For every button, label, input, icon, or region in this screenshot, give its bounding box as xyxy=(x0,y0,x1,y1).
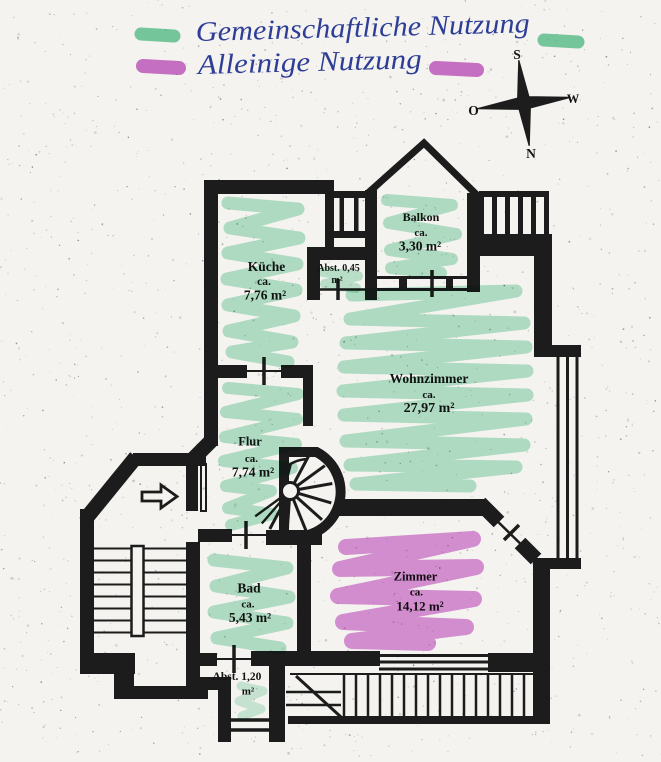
svg-text:O: O xyxy=(468,103,479,118)
svg-text:Abst. 1,20: Abst. 1,20 xyxy=(213,671,262,683)
svg-text:W: W xyxy=(567,92,580,106)
svg-text:S: S xyxy=(513,47,521,62)
svg-text:N: N xyxy=(526,146,536,161)
svg-text:Alleinige Nutzung: Alleinige Nutzung xyxy=(195,44,422,81)
